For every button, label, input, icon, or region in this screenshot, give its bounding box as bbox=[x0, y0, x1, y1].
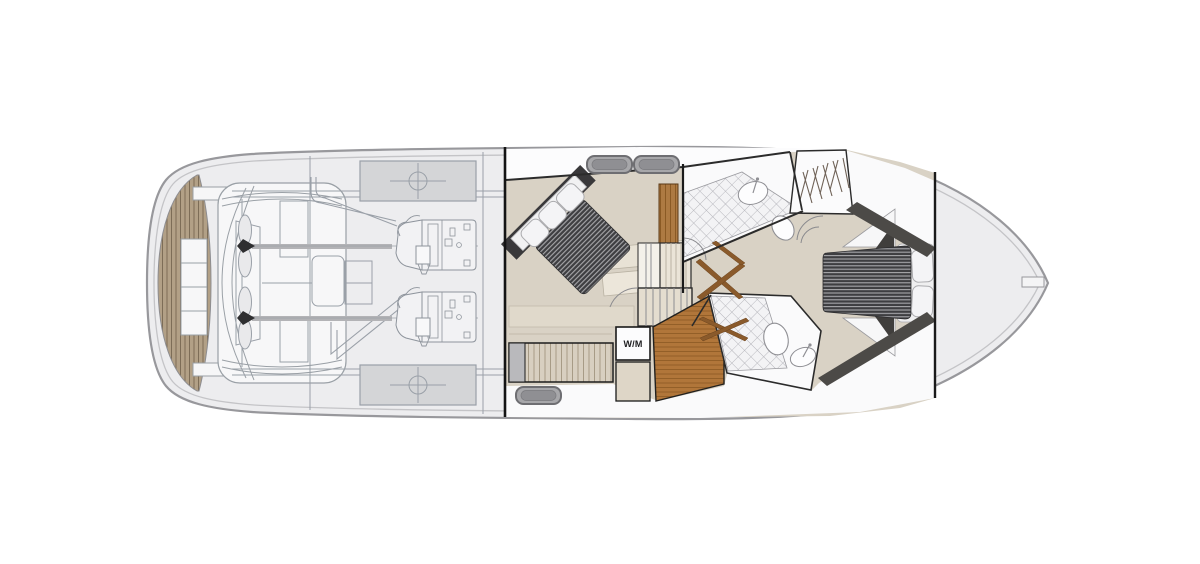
stair-upper-rail bbox=[638, 243, 660, 288]
bow-fitting bbox=[1022, 277, 1044, 287]
floorplan-canvas: W/M bbox=[0, 0, 1200, 564]
port-engine bbox=[396, 216, 476, 274]
basin-tap-dot bbox=[808, 343, 811, 346]
deck-hatch-top-2 bbox=[634, 156, 679, 173]
pillow-1 bbox=[911, 249, 934, 282]
cabinet-below-wm bbox=[616, 362, 650, 401]
hanging-locker bbox=[790, 150, 853, 214]
bench-under-bed bbox=[509, 306, 634, 327]
starboard-engine bbox=[396, 288, 476, 346]
prop-shaft-port bbox=[252, 244, 392, 249]
wardrobe-end-cell bbox=[509, 343, 525, 382]
yacht-floorplan: W/M bbox=[0, 0, 1200, 564]
deck-hatch-top-1 bbox=[587, 156, 632, 173]
deck-hatch-bottom bbox=[516, 387, 561, 404]
stern-area bbox=[158, 175, 346, 391]
washing-machine-label: W/M bbox=[623, 339, 642, 349]
basin-tap-dot bbox=[756, 177, 759, 180]
pillow-2 bbox=[911, 285, 934, 317]
fore-bed-mattress bbox=[823, 246, 911, 319]
prop-shaft-starboard bbox=[252, 316, 392, 321]
utility-block: W/M bbox=[616, 327, 650, 401]
